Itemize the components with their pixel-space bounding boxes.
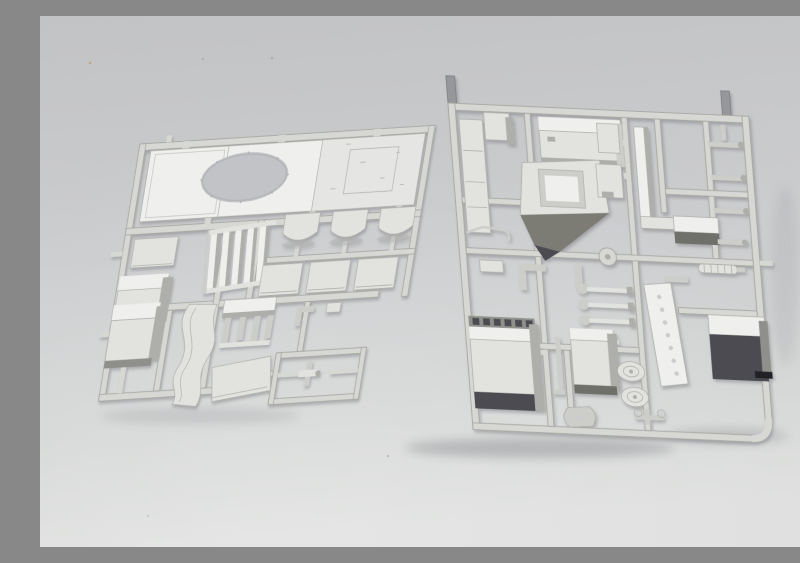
photo-canvas — [40, 16, 800, 547]
medium-stowage-box — [570, 328, 622, 395]
hook-bracket — [563, 405, 596, 428]
radiator-grille-box — [468, 316, 545, 412]
flat-plate-part — [130, 237, 178, 269]
stowage-box — [104, 302, 169, 369]
small-dark-box — [673, 216, 720, 245]
sprue-gate-tab — [446, 76, 457, 106]
ball-levers — [576, 283, 635, 327]
dark-stowage-box — [708, 315, 773, 382]
kit-sprues-photo — [40, 16, 800, 547]
sprue-gate-tab — [721, 91, 732, 118]
